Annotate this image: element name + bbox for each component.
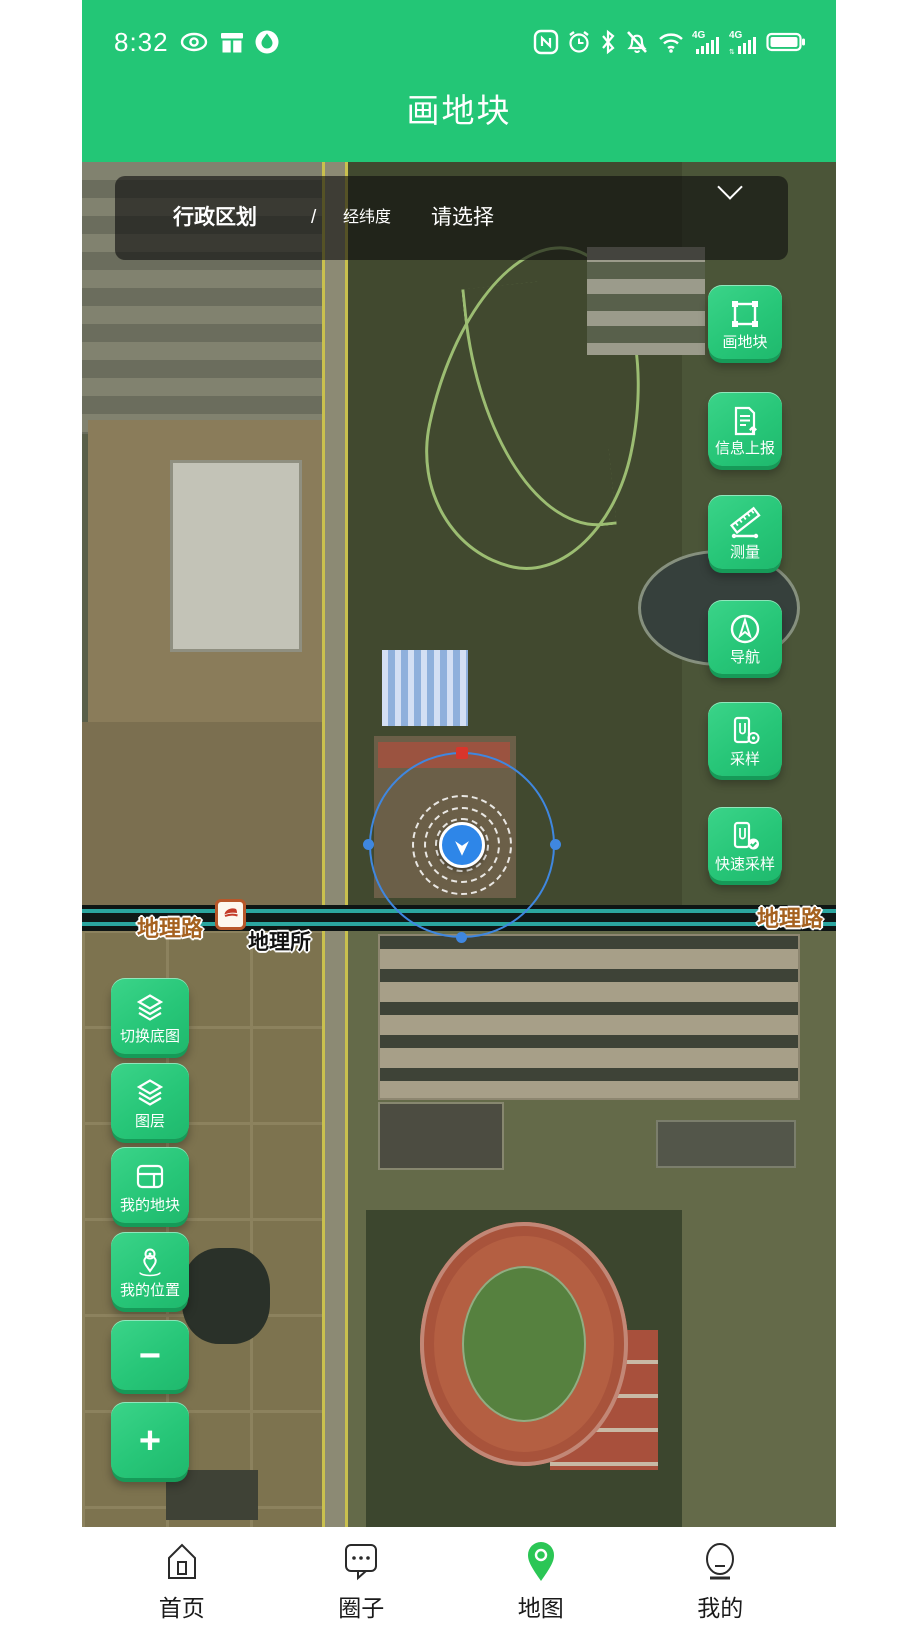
- status-right: 4G 4G⇅: [533, 28, 806, 56]
- filter-separator: /: [311, 176, 316, 260]
- circle-chat-icon: [338, 1537, 384, 1585]
- svg-text:4G: 4G: [692, 30, 706, 41]
- measure-button[interactable]: 测量: [708, 495, 782, 569]
- tool-label: 快速采样: [715, 857, 775, 873]
- map-barracks-rows: [380, 936, 798, 1098]
- poi-label: 地理所: [248, 926, 311, 956]
- tool-label: 导航: [730, 650, 760, 666]
- droplet-app-icon: [254, 29, 280, 55]
- layers-icon: [132, 1075, 168, 1111]
- my-location-icon: [132, 1244, 168, 1280]
- navigate-icon: [727, 611, 763, 647]
- zoom-out-button[interactable]: −: [111, 1320, 189, 1390]
- circle-handle-left[interactable]: [363, 839, 374, 850]
- zoom-in-button[interactable]: +: [111, 1402, 189, 1478]
- quick-sample-icon: [727, 818, 763, 854]
- draw-parcel-button[interactable]: 画地块: [708, 285, 782, 359]
- status-bar: 8:32 4G 4G⇅: [82, 0, 836, 70]
- tool-label: 我的位置: [120, 1283, 180, 1299]
- map-buildings-topright: [587, 247, 705, 355]
- nav-label: 圈子: [338, 1589, 384, 1623]
- map-building-right: [656, 1120, 796, 1168]
- lnglat-label[interactable]: 经纬度: [343, 176, 391, 260]
- tool-label: 图层: [135, 1114, 165, 1130]
- map-building-bottomleft: [166, 1470, 258, 1520]
- draw-parcel-icon: [727, 296, 763, 332]
- nfc-icon: [533, 29, 559, 55]
- layers-button[interactable]: 图层: [111, 1063, 189, 1139]
- basemap-switch-icon: [132, 990, 168, 1026]
- nav-item-circle[interactable]: 圈子: [338, 1537, 384, 1623]
- sample-button[interactable]: 采样: [708, 702, 782, 776]
- status-left: 8:32: [114, 27, 280, 58]
- tool-label: 画地块: [722, 335, 767, 351]
- tool-label: 我的地块: [120, 1198, 180, 1214]
- nav-item-map[interactable]: 地图: [518, 1537, 564, 1623]
- svg-text:⇅: ⇅: [729, 48, 735, 56]
- measure-icon: [727, 506, 763, 542]
- map-canvas[interactable]: 地理路 地理所 地理路 行政区划 / 经纬度 请选择: [82, 162, 836, 1527]
- road-label-right: 地理路: [757, 901, 823, 933]
- map-building-center: [378, 1102, 504, 1170]
- nav-item-home[interactable]: 首页: [159, 1537, 205, 1623]
- profile-icon: [697, 1537, 743, 1585]
- signal-4g-sim1-icon: 4G: [692, 28, 722, 56]
- admin-division-label[interactable]: 行政区划: [173, 176, 257, 260]
- nav-label: 首页: [159, 1589, 205, 1623]
- region-filter-bar[interactable]: 行政区划 / 经纬度 请选择: [115, 176, 788, 260]
- signal-4g-sim2-icon: 4G⇅: [729, 28, 759, 56]
- tool-label: 采样: [730, 752, 760, 768]
- eye-icon: [178, 30, 210, 54]
- chevron-down-icon[interactable]: [719, 176, 743, 200]
- nav-label: 我的: [697, 1589, 743, 1623]
- clock-time: 8:32: [114, 27, 169, 58]
- info-report-icon: [728, 404, 762, 438]
- sample-icon: [727, 713, 763, 749]
- tool-label: 测量: [730, 545, 760, 561]
- page-title: 画地块: [82, 84, 836, 132]
- map-dark-pond: [182, 1248, 270, 1344]
- current-location-marker[interactable]: [439, 822, 485, 868]
- wifi-icon: [657, 29, 685, 55]
- circle-handle-top-red[interactable]: [456, 747, 468, 759]
- region-select-placeholder[interactable]: 请选择: [431, 176, 494, 260]
- zoom-out-icon: −: [139, 1337, 161, 1375]
- map-blue-roof-building: [382, 650, 468, 726]
- bluetooth-icon: [599, 29, 617, 55]
- tool-label: 信息上报: [715, 441, 775, 457]
- circle-handle-bottom[interactable]: [456, 932, 467, 943]
- my-parcels-icon: [132, 1159, 168, 1195]
- navigate-button[interactable]: 导航: [708, 600, 782, 674]
- nav-item-profile[interactable]: 我的: [697, 1537, 743, 1623]
- bell-off-icon: [624, 29, 650, 55]
- tool-label: 切换底图: [120, 1029, 180, 1045]
- battery-icon: [766, 30, 806, 54]
- quick-sample-button[interactable]: 快速采样: [708, 807, 782, 881]
- my-location-button[interactable]: 我的位置: [111, 1232, 189, 1308]
- map-pin-icon: [518, 1537, 564, 1585]
- map-stadium-field: [462, 1266, 586, 1422]
- gift-icon: [219, 29, 245, 55]
- svg-text:4G: 4G: [729, 30, 743, 41]
- zoom-in-icon: +: [139, 1422, 161, 1460]
- alarm-icon: [566, 29, 592, 55]
- map-building-complex: [170, 460, 302, 652]
- nav-label: 地图: [518, 1589, 564, 1623]
- circle-handle-right[interactable]: [550, 839, 561, 850]
- map-vertical-road: [322, 162, 348, 1527]
- map-dirt-field-2: [82, 722, 334, 906]
- bus-stop-badge-icon: [215, 899, 246, 930]
- my-parcels-button[interactable]: 我的地块: [111, 1147, 189, 1223]
- bottom-nav: 首页 圈子 地图 我的: [82, 1527, 836, 1632]
- basemap-switch-button[interactable]: 切换底图: [111, 978, 189, 1054]
- info-report-button[interactable]: 信息上报: [708, 392, 782, 466]
- phone-screenshot: 8:32 4G 4G⇅ 画地块: [0, 0, 918, 1632]
- road-label-left: 地理路: [137, 911, 203, 943]
- app-frame: 8:32 4G 4G⇅ 画地块: [82, 0, 836, 1632]
- home-icon: [159, 1537, 205, 1585]
